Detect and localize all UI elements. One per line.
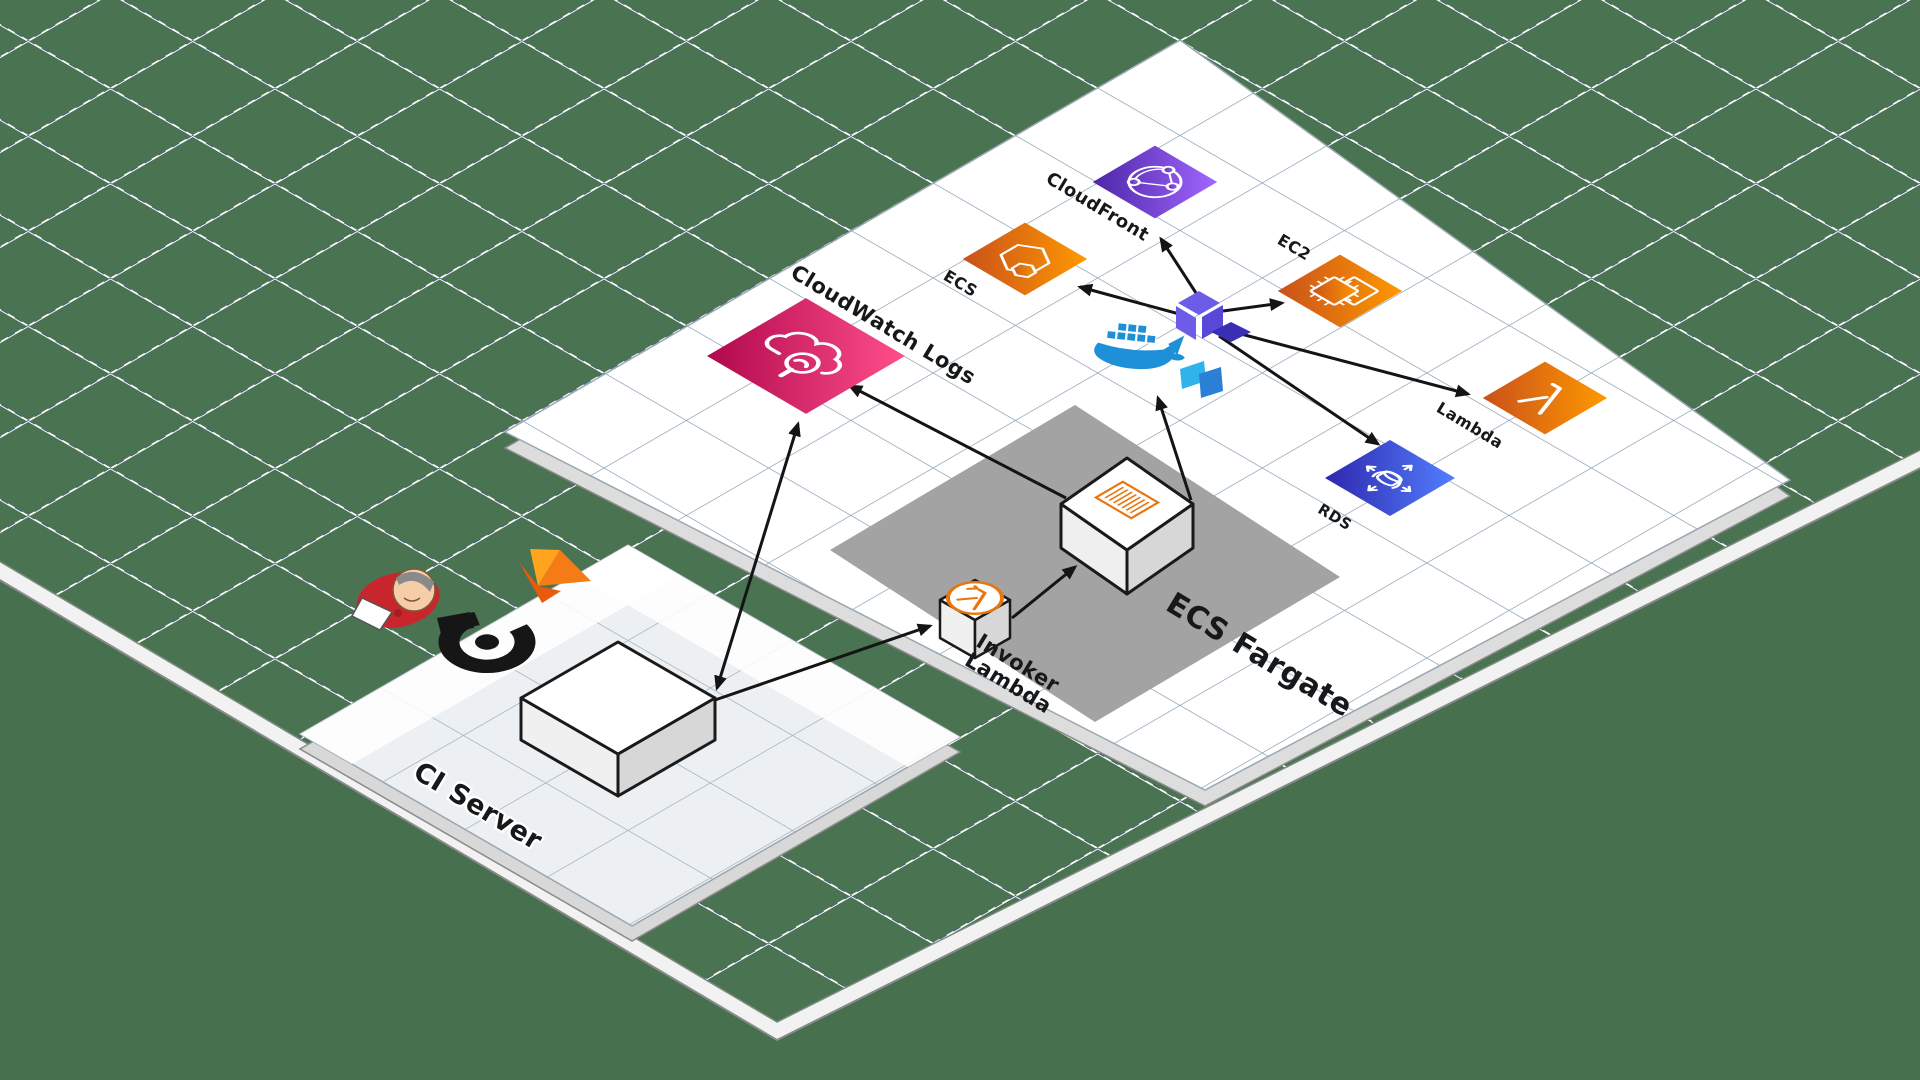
isometric-architecture-diagram	[0, 0, 1920, 1080]
